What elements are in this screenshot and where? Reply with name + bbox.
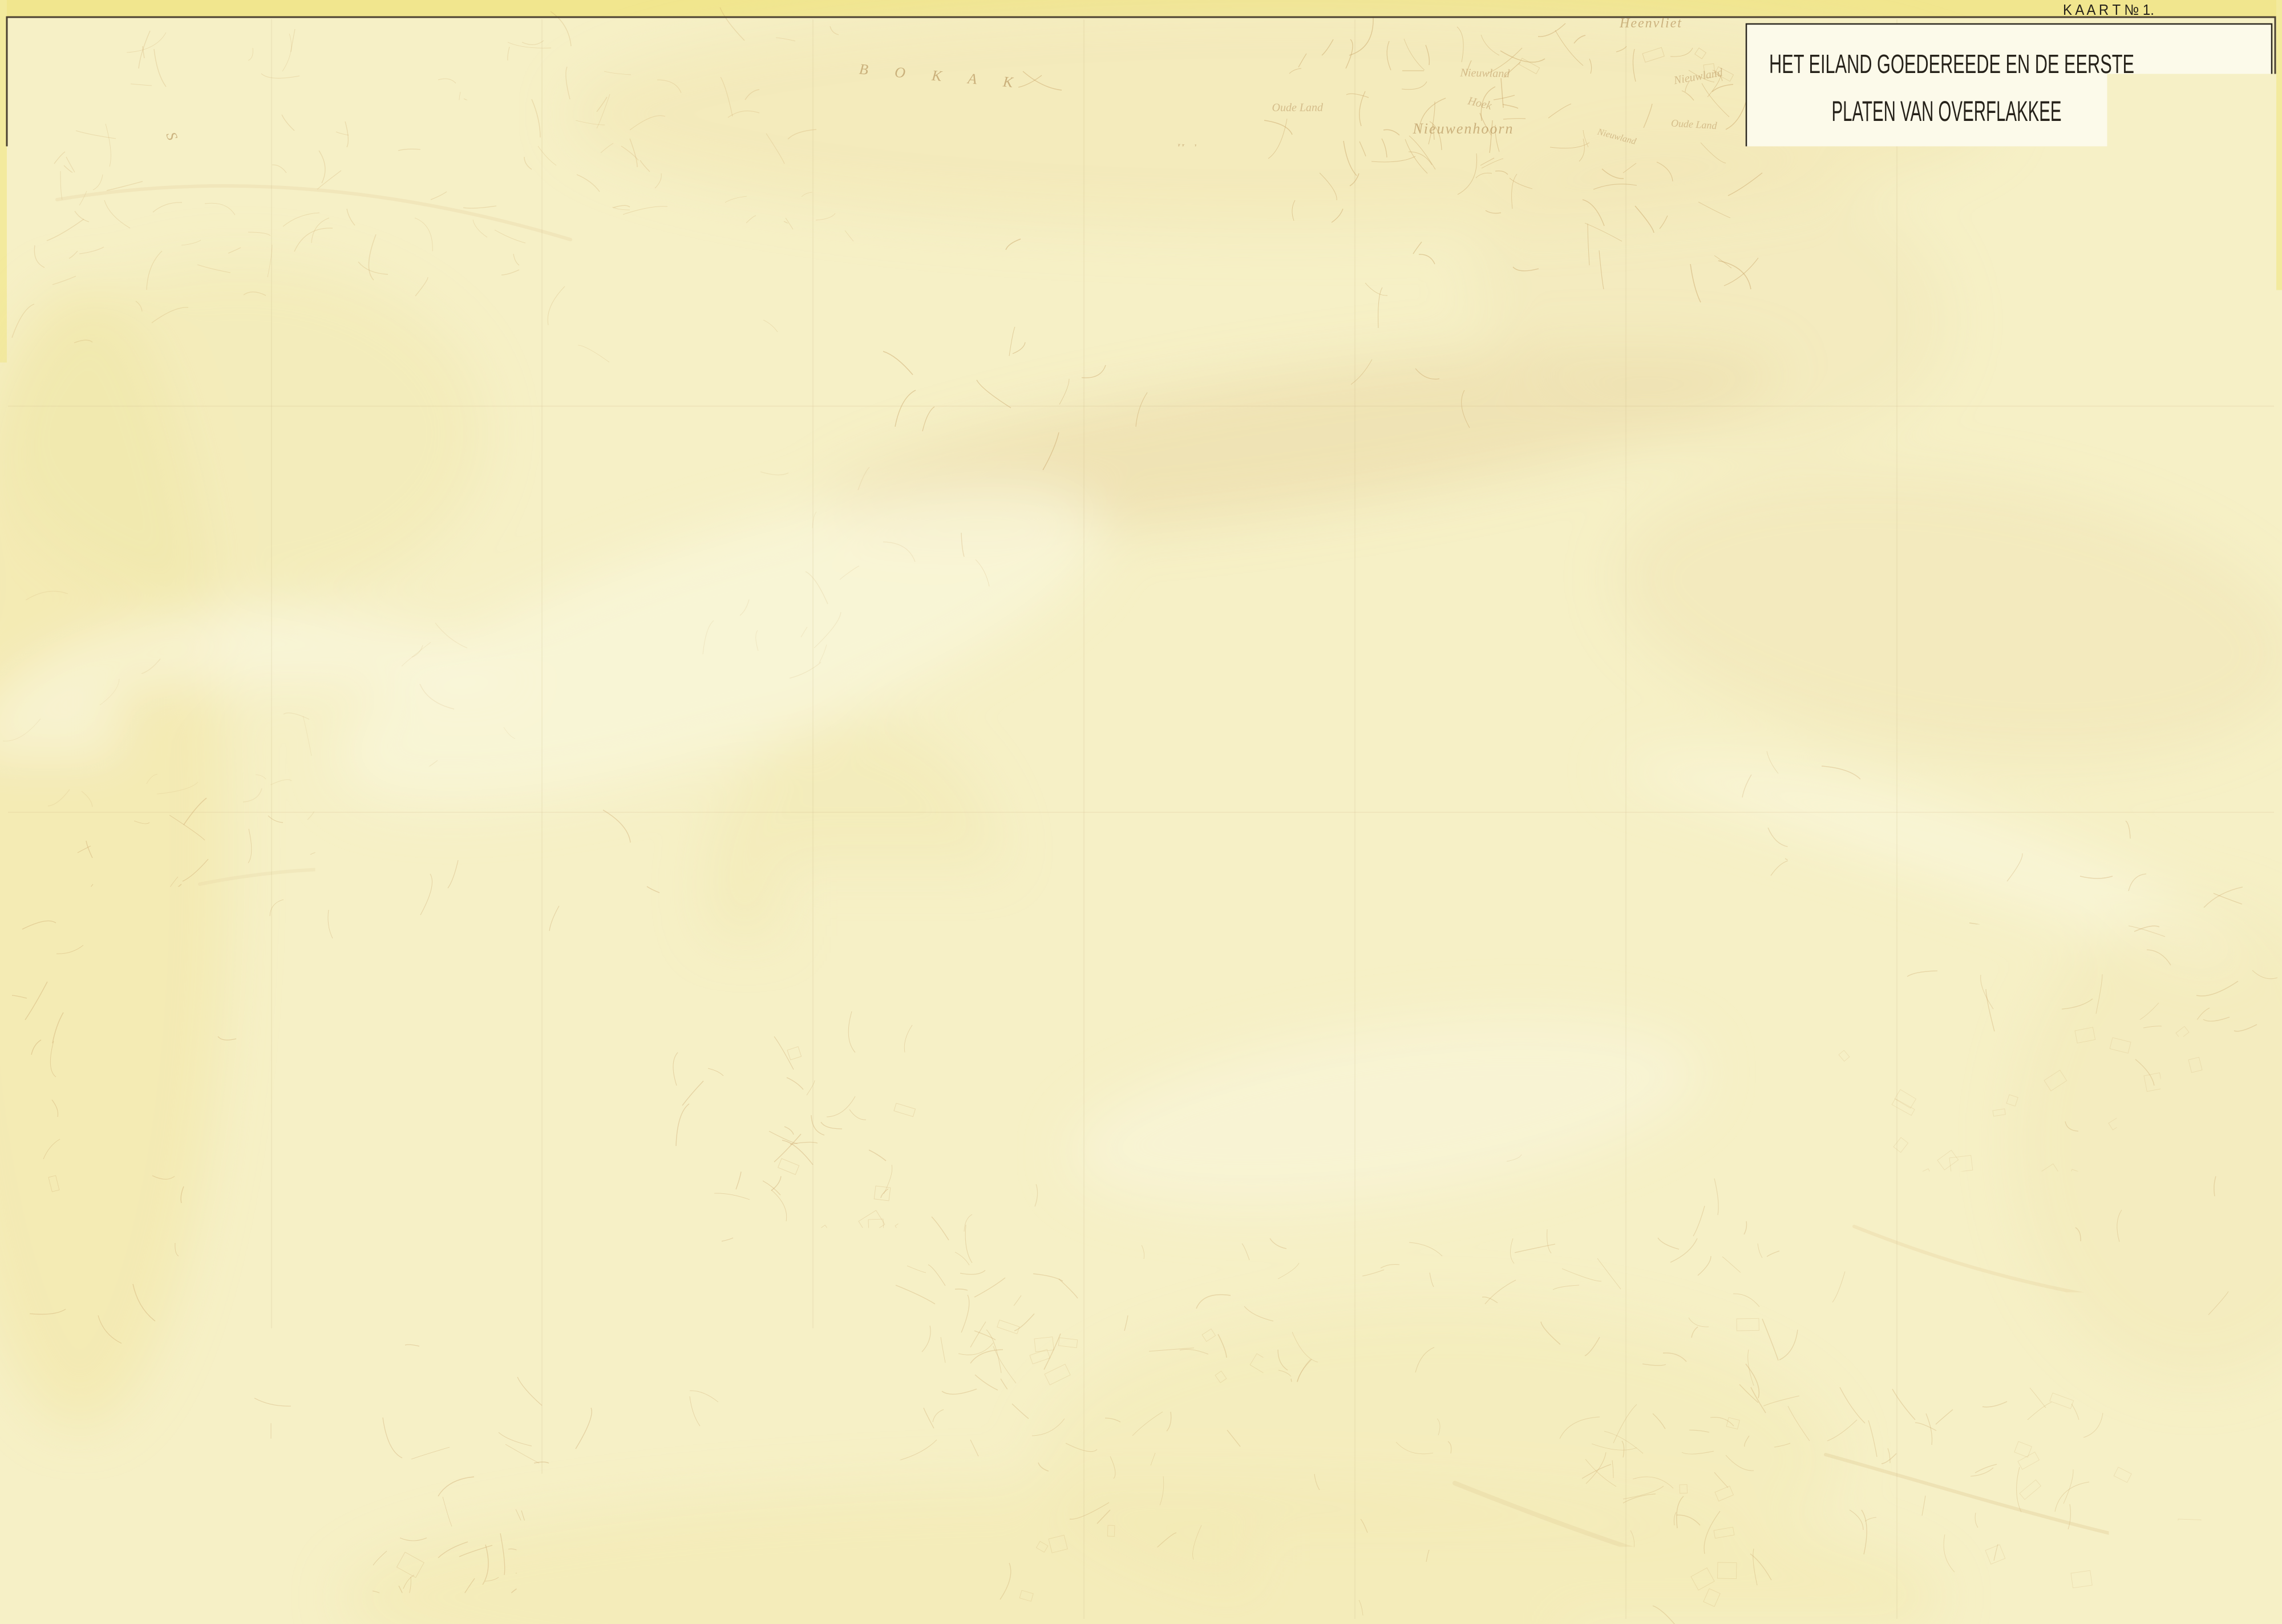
svg-text:BEDIJKINGEN: BEDIJKINGEN: [1861, 343, 1978, 361]
svg-text:(1239 - 1249): (1239 - 1249): [110, 752, 267, 776]
svg-text:Herkingen: Herkingen: [960, 963, 1031, 981]
svg-text:Gudtseke: Gudtseke: [1567, 799, 1623, 815]
svg-text:Oude Land: Oude Land: [2175, 550, 2222, 561]
svg-text:Nieuwland: Nieuwland: [375, 310, 438, 327]
svg-text:(1415): (1415): [980, 985, 1013, 999]
svg-text:Zomerland: Zomerland: [809, 465, 880, 483]
svg-text:1: 1: [1889, 250, 1896, 263]
svg-text:D i r k s l a n d: D i r k s l a n d: [1009, 809, 1107, 833]
svg-text:Serooskerke: Serooskerke: [47, 1396, 139, 1414]
svg-text:E: E: [1937, 1149, 1957, 1181]
svg-text:DIJKEN OP GOEDEREEDE: DIJKEN OP GOEDEREEDE: [1861, 313, 2082, 330]
svg-text:Nieuwe: Nieuwe: [284, 303, 321, 319]
svg-text:(1421): (1421): [1294, 1213, 1330, 1228]
svg-text:(1404): (1404): [1583, 815, 1612, 827]
svg-text:oord: oord: [289, 324, 311, 340]
svg-text:slikken: slikken: [1720, 1392, 1773, 1409]
svg-text:PLATEN VAN OVERFLAKKEE: PLATEN VAN OVERFLAKKEE: [1832, 95, 2062, 127]
svg-text:V L A C K E E: V L A C K E E: [1121, 519, 1332, 549]
svg-text:Goudswaard: Goudswaard: [1762, 1529, 1848, 1546]
svg-text:6 km.: 6 km.: [2108, 250, 2136, 263]
svg-text:Sommelsdijk: Sommelsdijk: [1224, 869, 1312, 886]
svg-text:Battenoord: Battenoord: [1229, 1064, 1338, 1082]
svg-text:de Tonge: de Tonge: [1439, 1160, 1528, 1179]
svg-text:Nieuwland: Nieuwland: [1672, 1550, 1723, 1563]
svg-text:Hoek: Hoek: [1176, 141, 1199, 154]
svg-text:VIER HERNESSEN: VIER HERNESSEN: [1191, 776, 1399, 803]
svg-text:BROUWERSHAVEN: BROUWERSHAVEN: [249, 1090, 447, 1109]
svg-text:Ooltgensplaat: Ooltgensplaat: [1885, 1121, 1992, 1139]
svg-text:Oude Land: Oude Land: [62, 1022, 108, 1034]
svg-text:(in opkomst): (in opkomst): [1242, 1085, 1329, 1101]
svg-text:0: 0: [1846, 250, 1852, 263]
svg-text:Hugevliet: Hugevliet: [1269, 1173, 1356, 1191]
svg-text:Oude Land: Oude Land: [1272, 102, 1324, 114]
svg-text:Oude Land: Oude Land: [203, 965, 255, 981]
svg-text:K A A R T № 1.: K A A R T № 1.: [2063, 1, 2154, 18]
svg-text:Oost: Oost: [1448, 321, 1468, 333]
svg-text:(1421): (1421): [1474, 1026, 1506, 1040]
svg-text:(1355): (1355): [1395, 878, 1429, 893]
svg-text:West: West: [2040, 558, 2062, 572]
svg-text:Stellendam: Stellendam: [828, 391, 906, 407]
svg-text:(1348): (1348): [1223, 548, 1272, 566]
svg-text:plaat: plaat: [219, 1045, 242, 1056]
svg-text:4: 4: [2022, 250, 2028, 263]
svg-text:(begin15e eeuw): (begin15e eeuw): [1890, 1137, 1985, 1152]
svg-text:Dreischor: Dreischor: [669, 1173, 738, 1190]
svg-text:Goedereede: Goedereede: [648, 324, 726, 341]
svg-text:Noordgouwe: Noordgouwe: [489, 1198, 572, 1213]
svg-text:Grijsoord: Grijsoord: [1452, 1068, 1527, 1087]
svg-text:(1284): (1284): [1471, 1090, 1507, 1104]
svg-text:(begin15e eeuw): (begin15e eeuw): [1867, 1256, 1953, 1271]
svg-text:Tordmoer: Tordmoer: [1715, 1143, 1799, 1160]
svg-text:(1220 - 1226): (1220 - 1226): [811, 482, 877, 495]
svg-text:HELLEVOETSLUIS: HELLEVOETSLUIS: [1174, 442, 1342, 458]
svg-text:(1312): (1312): [674, 341, 702, 354]
svg-text:Zuid Beijerland: Zuid Beijerland: [2021, 758, 2155, 776]
svg-text:Nieuwland: Nieuwland: [373, 1434, 419, 1445]
svg-text:Ouwerkerk: Ouwerkerk: [478, 1564, 555, 1580]
svg-text:Oude Tonge: Oude Tonge: [1370, 1283, 1464, 1301]
svg-text:(in opkomst): (in opkomst): [1269, 1194, 1355, 1210]
svg-text:Roxenisse: Roxenisse: [848, 606, 903, 622]
svg-text:Hals - polder: Hals - polder: [1142, 603, 1237, 618]
svg-text:Oosterland: Oosterland: [889, 1495, 965, 1512]
svg-text:(1381): (1381): [1742, 1173, 1771, 1186]
svg-text:Nieuwland: Nieuwland: [976, 388, 1022, 402]
svg-text:Bruinisse: Bruinisse: [949, 1444, 1015, 1460]
svg-text:(1229): (1229): [1031, 834, 1075, 851]
svg-text:ZIERIKZEE: ZIERIKZEE: [329, 1349, 470, 1370]
svg-text:Zonnemaire: Zonnemaire: [565, 1253, 648, 1269]
svg-text:(1438): (1438): [1463, 1183, 1503, 1197]
svg-text:plaat: plaat: [1236, 214, 1261, 227]
svg-text:Nieuwland: Nieuwland: [1459, 67, 1510, 80]
svg-text:Hoek: Hoek: [2167, 1402, 2188, 1413]
svg-text:Melissant: Melissant: [1129, 748, 1197, 764]
svg-text:OMSTREEKS 1415.: OMSTREEKS 1415.: [1879, 144, 2019, 169]
svg-text:PLATEN: PLATEN: [1861, 375, 1928, 392]
svg-text:1901 - 2001: 1901 - 2001: [2014, 1577, 2102, 1597]
svg-text:(1557): (1557): [393, 327, 420, 339]
svg-text:Oude Land: Oude Land: [151, 1482, 203, 1496]
svg-text:5: 5: [2066, 250, 2072, 263]
svg-text:(voor1300): (voor1300): [613, 272, 669, 285]
svg-text:Oude Land: Oude Land: [485, 1159, 527, 1170]
svg-text:(begin15e eeuw)(?): (begin15e eeuw)(?): [1702, 1333, 1799, 1347]
svg-text:Elkerzee: Elkerzee: [138, 1126, 195, 1141]
svg-text:SCOUDEMAREDIEP: SCOUDEMAREDIEP: [56, 719, 347, 756]
svg-text:Duivenwaard: Duivenwaard: [1260, 949, 1357, 966]
svg-text:BIJ BENADERING.: BIJ BENADERING.: [2002, 347, 2147, 364]
svg-text:Oostdijk: Oostdijk: [621, 256, 671, 273]
svg-text:polder: polder: [1394, 1358, 1434, 1372]
svg-text:(1367): (1367): [285, 346, 310, 359]
svg-text:Sparwaertsgors en: Sparwaertsgors en: [301, 517, 438, 538]
svg-text:3: 3: [1978, 250, 1984, 263]
svg-text:Sirjansland: Sirjansland: [758, 1398, 837, 1415]
svg-text:Nieuwenhoorn: Nieuwenhoorn: [1412, 120, 1514, 137]
svg-text:(1339): (1339): [1252, 886, 1285, 901]
svg-text:(1312): (1312): [1618, 1363, 1646, 1378]
svg-text:Het groote Kruis: Het groote Kruis: [312, 444, 398, 460]
svg-text:G a l a t h e e: G a l a t h e e: [1848, 1239, 1968, 1258]
svg-text:plaat: plaat: [1549, 1457, 1573, 1471]
svg-text:(1392): (1392): [357, 575, 385, 591]
svg-text:(1359): (1359): [1584, 868, 1617, 882]
svg-text:Middelhernisse: Middelhernisse: [1369, 862, 1453, 879]
svg-text:(voor 1300): (voor 1300): [433, 417, 492, 432]
svg-text:Hoek: Hoek: [1272, 206, 1293, 217]
svg-text:Groot: Groot: [1067, 219, 1093, 231]
svg-text:Slikken van de Heene: Slikken van de Heene: [1471, 1558, 1666, 1574]
svg-text:Klein: Klein: [1109, 271, 1135, 284]
svg-text:Oudenhoorn: Oudenhoorn: [1625, 406, 1711, 422]
svg-text:polder: polder: [1146, 1416, 1178, 1429]
svg-text:en Heghenisse: en Heghenisse: [1672, 1293, 1763, 1310]
svg-text:Groede: Groede: [395, 242, 447, 259]
svg-text:R: R: [1184, 1059, 1205, 1089]
svg-text:Heenvliet: Heenvliet: [1619, 16, 1682, 31]
svg-text:(1421): (1421): [1269, 1104, 1304, 1119]
svg-text:de Heyninge: de Heyninge: [325, 547, 414, 568]
svg-text:2: 2: [1933, 250, 1940, 263]
svg-text:Slikken: Slikken: [444, 868, 509, 887]
svg-text:Hoek: Hoek: [2167, 1433, 2190, 1447]
svg-text:Oude Land: Oude Land: [696, 1445, 743, 1457]
svg-text:(uitbreiding): (uitbreiding): [1722, 1159, 1793, 1174]
svg-text:West: West: [1541, 198, 1564, 213]
svg-text:(1416-1420): (1416-1420): [1273, 966, 1344, 981]
svg-text:DUINEN: DUINEN: [1861, 283, 1928, 300]
svg-text:Trentmoer of Tordmoer: Trentmoer of Tordmoer: [1639, 1267, 1782, 1285]
svg-text:de Tonge (in opkomst): de Tonge (in opkomst): [1411, 1006, 1572, 1023]
svg-text:Ouddorp: Ouddorp: [369, 354, 430, 368]
svg-text:HET EILAND GOEDEREEDE EN DE EE: HET EILAND GOEDEREEDE EN DE EERSTE: [1769, 49, 2134, 79]
svg-text:DE JAARTALLEN GEVEN DE EERSTE: DE JAARTALLEN GEVEN DE EERSTE VERMELDING…: [1790, 409, 2105, 424]
svg-text:(1414): (1414): [861, 621, 889, 634]
svg-text:Bodemaeroord: Bodemaeroord: [1581, 1344, 1677, 1362]
svg-text:weg: weg: [149, 1326, 165, 1337]
svg-text:de Stad: de Stad: [1567, 849, 1631, 868]
svg-text:Nieuwerkerk: Nieuwerkerk: [640, 1518, 730, 1534]
svg-text:(1392): (1392): [349, 460, 373, 473]
svg-text:Diependorst: Diependorst: [408, 398, 519, 415]
svg-text:SCHAAL 1: 50 000.: SCHAAL 1: 50 000.: [1893, 210, 2000, 231]
svg-text:of: of: [416, 273, 428, 289]
svg-text:Middelharnis: Middelharnis: [1333, 724, 1440, 742]
svg-text:R: R: [1960, 1151, 1980, 1181]
svg-text:G: G: [1139, 1065, 1162, 1095]
svg-text:Flakkee: Flakkee: [837, 925, 896, 942]
